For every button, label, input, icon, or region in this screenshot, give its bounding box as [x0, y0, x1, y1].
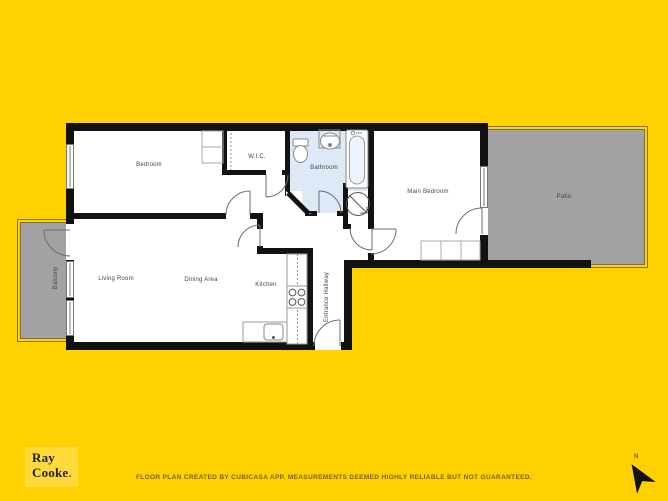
logo-line1: Ray: [32, 450, 78, 465]
toilet-icon: [293, 139, 308, 163]
label-living-room: Living Room: [98, 276, 134, 282]
window-mullions: [70, 146, 484, 334]
door-arc-kitchen: [238, 225, 260, 247]
label-bedroom: Bedroom: [136, 162, 162, 168]
label-main-bedroom: Main Bedroom: [407, 189, 448, 195]
north-indicator: N: [620, 452, 662, 496]
main-bedroom-wardrobe: [421, 241, 480, 260]
kitchen-sink-icon: [264, 324, 283, 340]
stove-icon: [287, 286, 307, 308]
label-kitchen: Kitchen: [255, 282, 276, 288]
door-arc-balcony: [44, 230, 70, 256]
disclaimer-text: FLOOR PLAN CREATED BY CUBICASA APP. MEAS…: [0, 474, 668, 481]
door-arc-bathroom: [319, 191, 341, 213]
label-entrance-hallway: Entrance Hallway: [324, 272, 330, 322]
shower-icon: [347, 193, 370, 216]
bathtub-icon: [346, 130, 368, 188]
label-patio: Patio: [557, 194, 572, 200]
sink-icon: [319, 130, 340, 149]
north-arrow-icon: [624, 460, 658, 494]
ray-cooke-logo: Ray Cooke.: [25, 447, 78, 487]
door-arc-main-bedroom: [371, 229, 396, 254]
label-dining-area: Dining Area: [184, 277, 217, 283]
label-wic: W.I.C.: [248, 154, 266, 160]
door-arc-shower: [350, 228, 372, 250]
label-bathroom: Bathroom: [310, 165, 338, 171]
bedroom-wardrobe: [202, 131, 223, 163]
floor-plan-sheet: Bedroom W.I.C. Bathroom Main Bedroom Pat…: [0, 0, 668, 501]
floorplan-fixtures-layer: [0, 0, 668, 501]
door-arc-patio: [456, 208, 482, 234]
door-arc-bedroom: [226, 191, 250, 215]
door-arc-entrance: [314, 320, 340, 346]
door-arc-wic: [266, 175, 288, 197]
label-balcony: Balcony: [53, 267, 59, 290]
